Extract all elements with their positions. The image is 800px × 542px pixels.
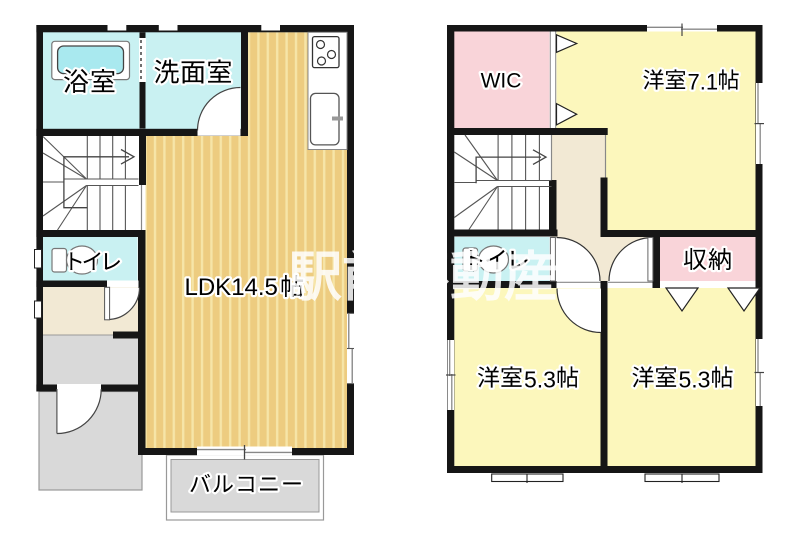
svg-text:WIC: WIC <box>481 70 522 93</box>
svg-text:5.3: 5.3 <box>524 367 556 393</box>
svg-text:5.3: 5.3 <box>679 367 711 393</box>
svg-text:7.1: 7.1 <box>688 70 719 95</box>
svg-text:LDK14.5: LDK14.5 <box>185 274 278 301</box>
